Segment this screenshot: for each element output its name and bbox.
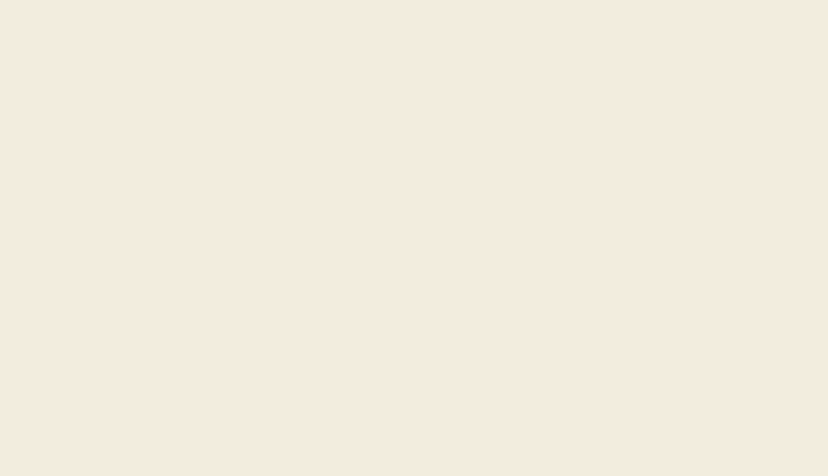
game-map-canvas[interactable] [0, 0, 828, 476]
game-viewport[interactable] [0, 0, 828, 476]
